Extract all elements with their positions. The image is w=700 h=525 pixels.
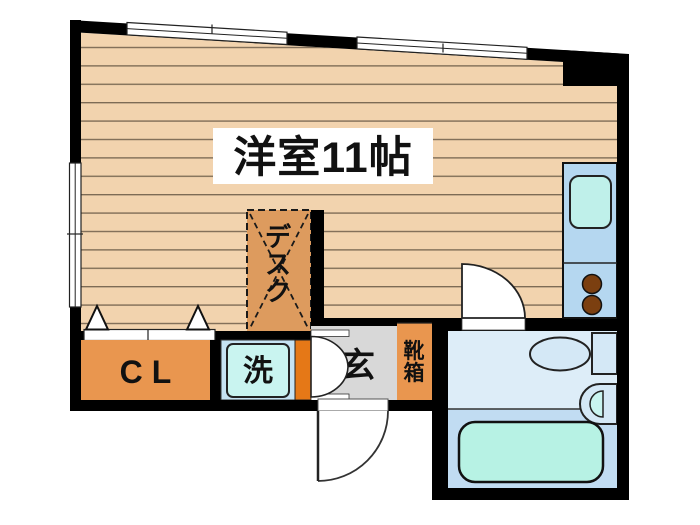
front-door-swing-fill xyxy=(318,411,388,481)
room-size-label: 洋室11帖 xyxy=(233,134,412,182)
bottom-wall-left xyxy=(70,400,318,411)
bathroom-top-wall xyxy=(432,318,629,331)
closet-washer-wall xyxy=(210,340,221,400)
desk-label: デスク xyxy=(265,222,292,307)
right-wall xyxy=(617,54,629,500)
front-door xyxy=(318,399,388,481)
kitchen-counter xyxy=(563,163,617,318)
toilet-tank xyxy=(592,333,617,374)
bathroom-door-threshold xyxy=(462,318,525,330)
bathtub xyxy=(459,422,603,482)
kitchen-burner xyxy=(583,275,602,294)
kitchen-burner xyxy=(583,296,602,315)
bathroom-left-wall xyxy=(432,318,448,500)
closet-door-track xyxy=(84,330,215,341)
closet-label: CL xyxy=(120,354,181,390)
floorplan-image: デスク 洋室11帖 CL 洗 玄 靴箱 xyxy=(0,0,700,525)
washer-area: 洗 xyxy=(221,340,295,400)
accent-strip xyxy=(295,340,311,400)
front-door-threshold xyxy=(318,399,388,411)
washer-label: 洗 xyxy=(243,355,273,388)
bathroom-bottom-wall xyxy=(432,488,629,500)
shoe-box-label: 靴箱 xyxy=(404,340,425,385)
left-window xyxy=(67,163,83,307)
desk-wall xyxy=(311,210,324,336)
floorplan-svg: デスク 洋室11帖 CL 洗 玄 靴箱 xyxy=(0,0,700,525)
desk-area: デスク xyxy=(247,210,311,332)
toilet-bowl xyxy=(530,338,590,371)
bifold-top-cap xyxy=(311,330,349,337)
kitchen-sink xyxy=(570,176,611,228)
